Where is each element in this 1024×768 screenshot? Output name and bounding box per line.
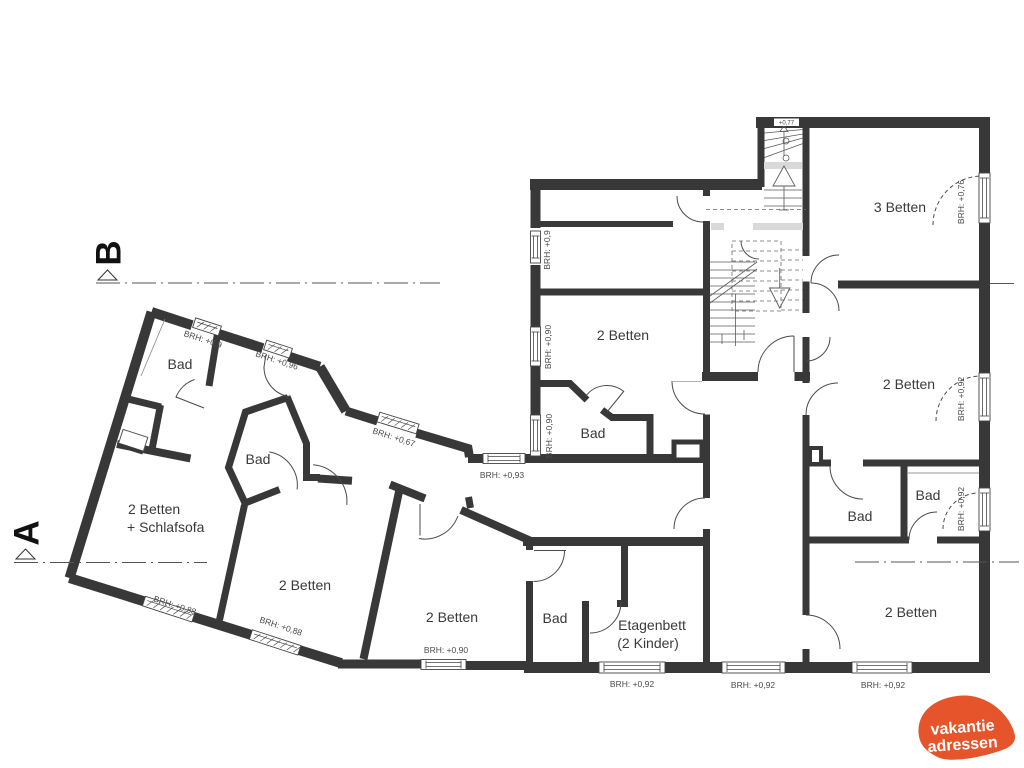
svg-text:BRH: +0,76: BRH: +0,76 [956,180,966,224]
svg-text:2 Betten: 2 Betten [426,609,478,625]
svg-text:BRH: +0,92: BRH: +0,92 [861,680,905,690]
svg-text:Etagenbett: Etagenbett [618,617,686,633]
svg-text:BRH: +0,90: BRH: +0,90 [543,325,553,369]
svg-text:3 Betten: 3 Betten [874,199,926,215]
svg-text:2 Betten: 2 Betten [883,376,935,392]
svg-text:(2 Kinder): (2 Kinder) [617,635,678,651]
svg-text:+0,77: +0,77 [779,121,795,127]
svg-text:+ Schlafsofa: + Schlafsofa [127,519,205,535]
svg-text:BRH: +0,9: BRH: +0,9 [542,230,552,270]
svg-text:2 Betten: 2 Betten [128,501,180,517]
svg-text:2 Betten: 2 Betten [885,604,937,620]
svg-text:2 Betten: 2 Betten [279,577,331,593]
svg-text:Bad: Bad [916,487,941,503]
svg-text:Bad: Bad [848,508,873,524]
svg-text:B: B [89,240,128,265]
svg-text:BRH: +0,92: BRH: +0,92 [610,679,654,689]
svg-text:Bad: Bad [168,356,193,372]
svg-text:Bad: Bad [543,610,568,626]
svg-text:BRH: +0,90: BRH: +0,90 [424,645,468,655]
svg-text:2 Betten: 2 Betten [597,327,649,343]
svg-text:A: A [7,520,46,545]
svg-text:BRH: +0,93: BRH: +0,93 [480,470,524,480]
svg-text:BRH: +0,92: BRH: +0,92 [956,377,966,421]
svg-text:BRH: +0,90: BRH: +0,90 [544,414,554,458]
svg-text:BRH: +0,92: BRH: +0,92 [956,487,966,531]
svg-text:BRH: +0,92: BRH: +0,92 [731,680,775,690]
svg-text:Bad: Bad [581,425,606,441]
svg-text:Bad: Bad [246,451,271,467]
